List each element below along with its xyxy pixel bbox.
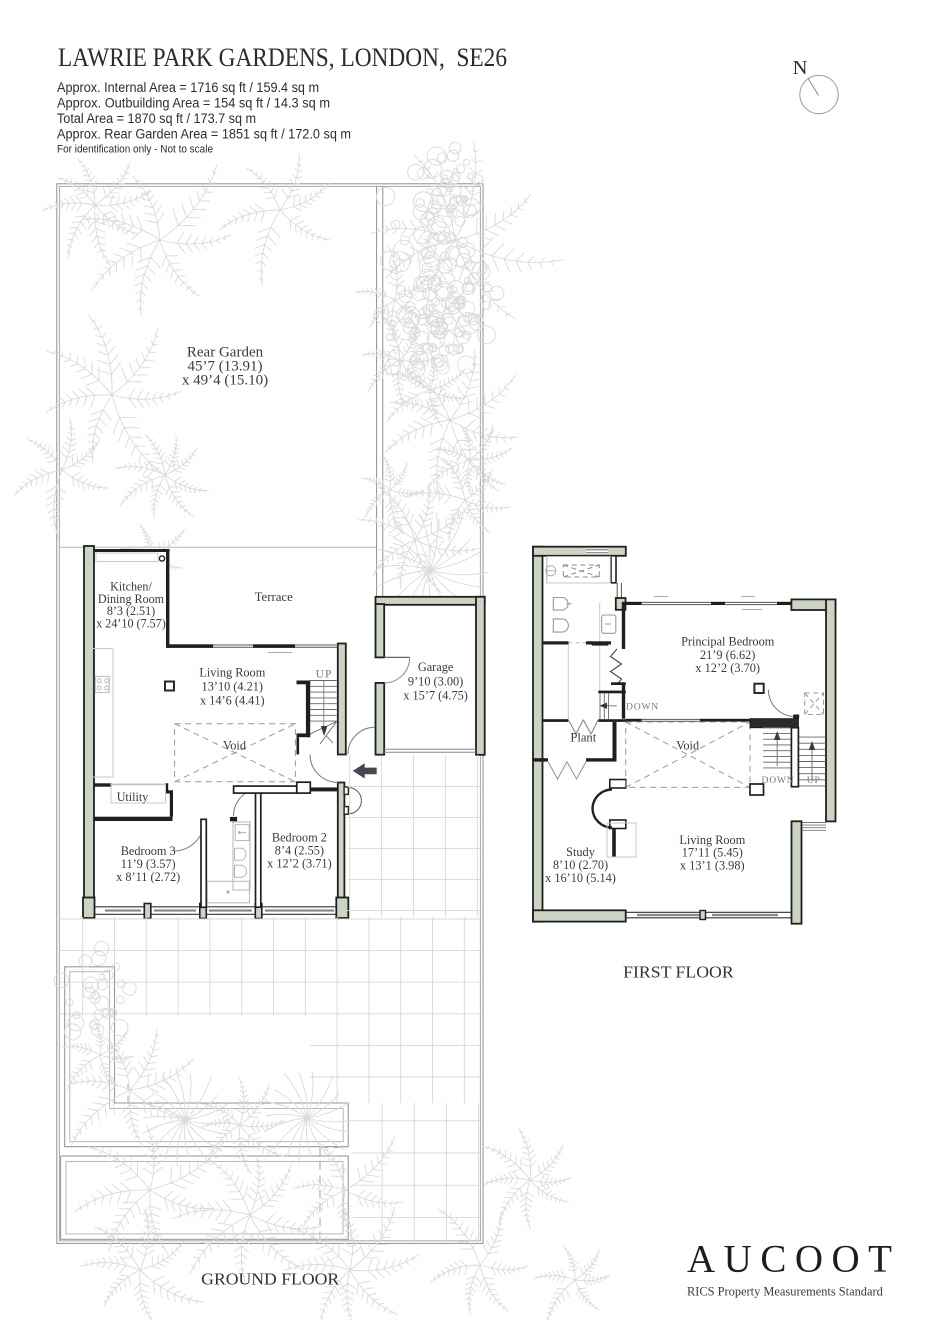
svg-text:x 24’10 (7.57): x 24’10 (7.57): [96, 616, 166, 630]
svg-text:Garage: Garage: [418, 660, 454, 674]
svg-text:8’10 (2.70): 8’10 (2.70): [553, 858, 608, 872]
svg-text:x 8’11 (2.72): x 8’11 (2.72): [116, 870, 180, 884]
svg-text:Living Room: Living Room: [199, 666, 265, 680]
svg-text:x 49’4 (15.10): x 49’4 (15.10): [182, 373, 268, 389]
svg-text:N: N: [793, 57, 808, 79]
svg-text:11’9 (3.57): 11’9 (3.57): [121, 857, 176, 871]
svg-text:For identification only - Not: For identification only - Not to scale: [57, 144, 213, 156]
svg-text:Study: Study: [566, 845, 596, 859]
svg-text:13’10 (4.21): 13’10 (4.21): [202, 679, 263, 693]
svg-text:Approx. Internal Area = 1716 s: Approx. Internal Area = 1716 sq ft / 159…: [57, 80, 319, 96]
svg-text:Principal Bedroom: Principal Bedroom: [681, 634, 775, 648]
svg-text:DOWN: DOWN: [761, 775, 794, 786]
svg-text:Bedroom 3: Bedroom 3: [121, 844, 176, 858]
svg-text:GROUND FLOOR: GROUND FLOOR: [201, 1270, 339, 1289]
svg-text:9’10 (3.00): 9’10 (3.00): [408, 674, 463, 688]
svg-text:DOWN: DOWN: [626, 702, 659, 713]
svg-text:AUCOOT: AUCOOT: [687, 1238, 901, 1281]
svg-text:Utility: Utility: [117, 790, 149, 804]
svg-text:Approx. Outbuilding Area = 154: Approx. Outbuilding Area = 154 sq ft / 1…: [57, 96, 330, 112]
svg-text:Plant: Plant: [570, 731, 596, 745]
svg-text:Total Area = 1870 sq ft / 173.: Total Area = 1870 sq ft / 173.7 sq m: [57, 111, 256, 127]
svg-text:x 12’2 (3.70): x 12’2 (3.70): [695, 661, 760, 675]
svg-text:21’9 (6.62): 21’9 (6.62): [700, 648, 755, 662]
svg-text:Void: Void: [223, 739, 246, 753]
svg-text:x 13’1 (3.98): x 13’1 (3.98): [680, 858, 745, 872]
svg-text:RICS Property Measurements Sta: RICS Property Measurements Standard: [687, 1285, 884, 1299]
svg-text:x 16’10 (5.14): x 16’10 (5.14): [545, 871, 616, 885]
svg-text:Bedroom 2: Bedroom 2: [272, 831, 327, 845]
svg-text:Void: Void: [676, 739, 699, 753]
svg-text:LAWRIE PARK GARDENS, LONDON,: LAWRIE PARK GARDENS, LONDON, SE26: [58, 42, 507, 72]
svg-text:x 12’2 (3.71): x 12’2 (3.71): [267, 856, 332, 870]
svg-text:UP: UP: [316, 668, 333, 681]
svg-text:UP: UP: [807, 775, 821, 786]
svg-text:x 15’7 (4.75): x 15’7 (4.75): [403, 689, 468, 703]
svg-text:Approx. Rear Garden Area = 18: Approx. Rear Garden Area = 1851 sq ft / …: [57, 127, 351, 143]
svg-text:FIRST FLOOR: FIRST FLOOR: [623, 963, 734, 982]
svg-text:x 14’6 (4.41): x 14’6 (4.41): [200, 693, 265, 707]
svg-text:Terrace: Terrace: [255, 590, 293, 604]
svg-text:8’4 (2.55): 8’4 (2.55): [275, 843, 324, 857]
